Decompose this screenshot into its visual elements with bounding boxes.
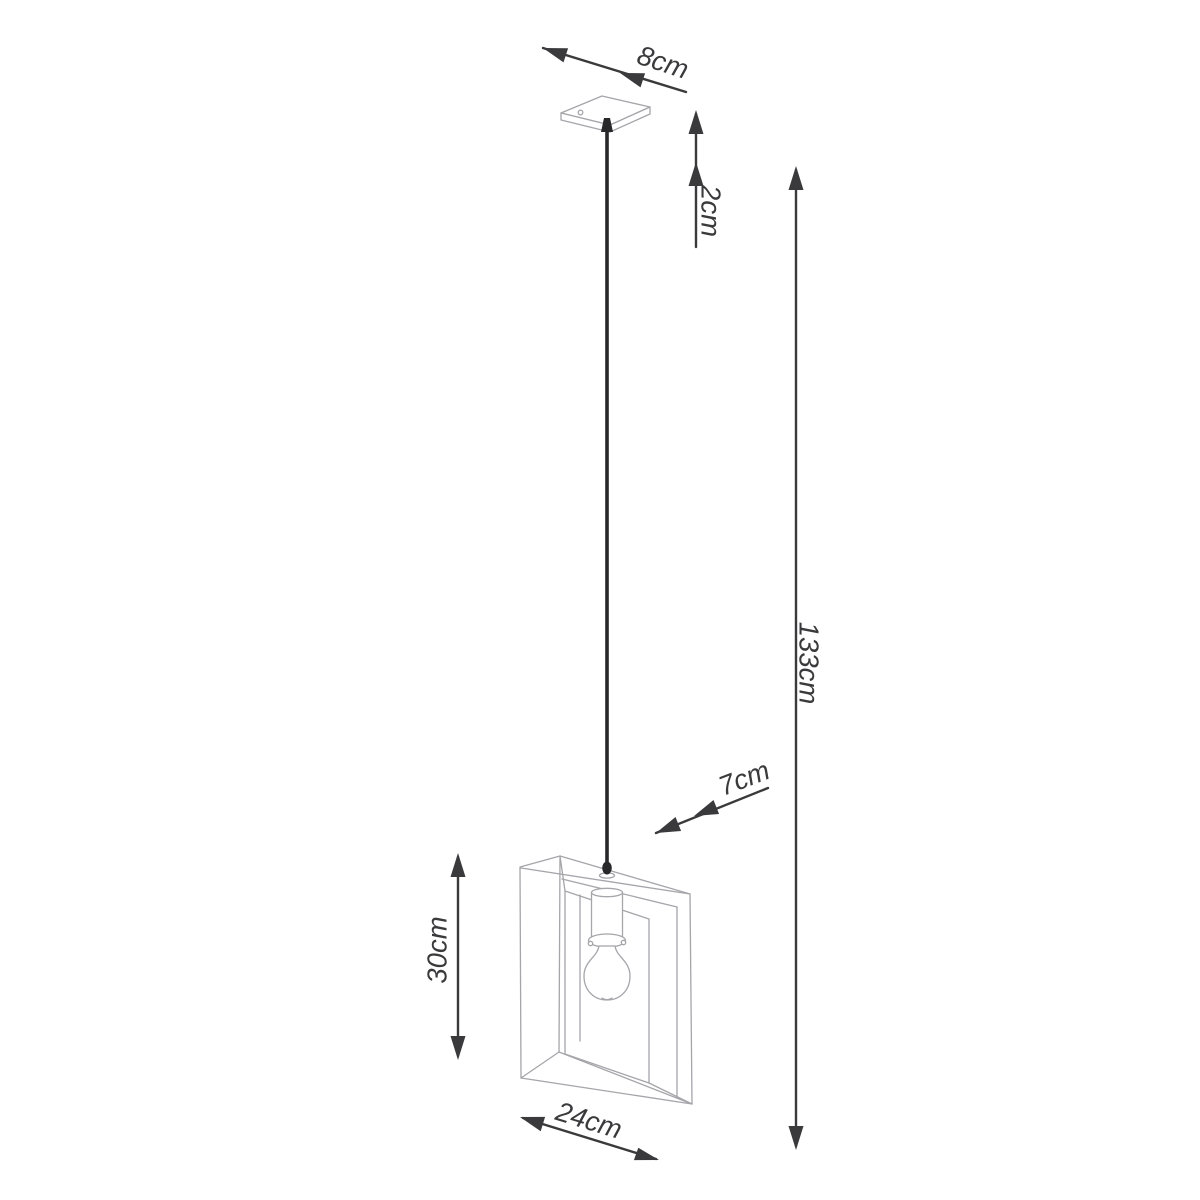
frame-depth-arrowhead-mid [694, 800, 719, 816]
frame-width-arrowhead-left [520, 1117, 545, 1131]
dimension-canopy-width: 8cm [543, 39, 692, 92]
dimension-overall-height: 133cm [789, 166, 825, 1150]
pendant-lamp-drawing: 8cm 2cm 133cm 7cm 30cm 24cm [0, 0, 1200, 1200]
overall-height-arrowhead-top [789, 166, 804, 190]
frame-depth-arrowhead-end [656, 817, 681, 833]
socket-collar [589, 934, 626, 947]
dimension-frame-depth: 7cm [656, 754, 774, 833]
frame-width-arrowhead-right [634, 1148, 659, 1160]
socket-top-rim [592, 888, 623, 896]
overall-height-arrowhead-bottom [789, 1126, 804, 1150]
canopy-width-arrowhead-end [543, 48, 568, 62]
frame-height-label: 30cm [422, 916, 453, 983]
frame-height-arrowhead-bottom [451, 1036, 466, 1060]
dimension-diagram: 8cm 2cm 133cm 7cm 30cm 24cm [0, 0, 1200, 1200]
cable-end-cap [602, 862, 612, 875]
pendant-cable [601, 118, 613, 866]
cable-wire [605, 128, 609, 866]
overall-height-label: 133cm [794, 622, 825, 705]
canopy-height-arrowhead-mid [689, 162, 704, 186]
dimension-canopy-height: 2cm [689, 110, 727, 247]
frame-depth-label: 7cm [714, 754, 774, 802]
frame-height-arrowhead-top [451, 853, 466, 877]
dimension-frame-height: 30cm [422, 853, 466, 1060]
socket-collar-bead-right [621, 940, 625, 944]
socket-collar-bead-left [588, 941, 592, 945]
bulb-socket [588, 888, 625, 947]
dimension-frame-width: 24cm [520, 1095, 659, 1160]
canopy-width-arrowhead-mid [620, 73, 645, 87]
canopy-height-arrowhead-end [689, 110, 704, 134]
canopy-height-label: 2cm [696, 184, 727, 237]
